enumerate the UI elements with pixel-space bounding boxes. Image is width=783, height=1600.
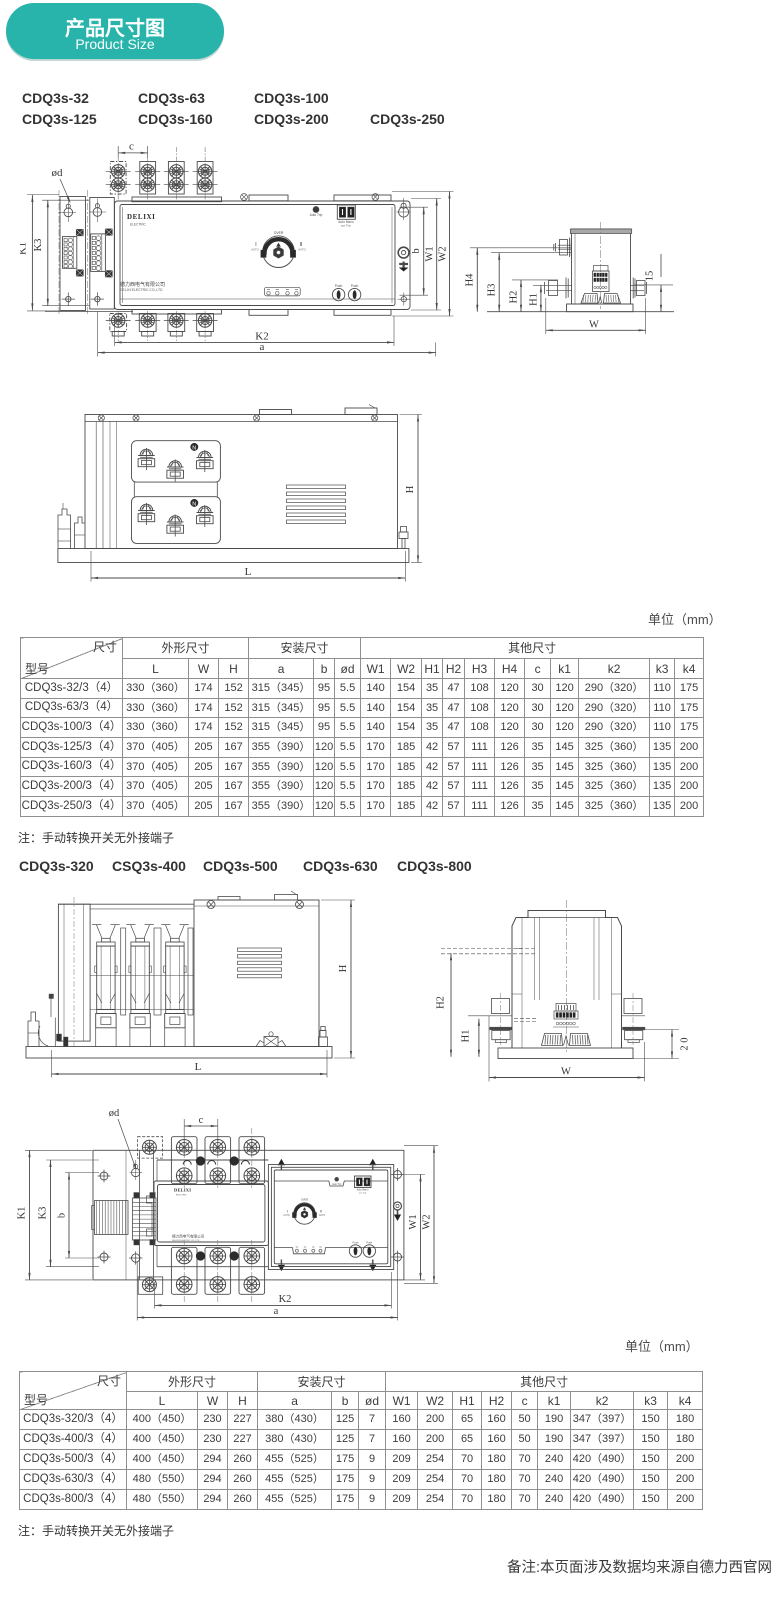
svg-text:c: c [199, 1115, 204, 1126]
svg-text:H: H [405, 485, 416, 493]
svg-text:OVER: OVER [301, 1197, 308, 1201]
svg-text:Push: Push [353, 1241, 359, 1245]
svg-text:aut Trip: aut Trip [341, 224, 351, 228]
svg-text:a: a [260, 341, 265, 353]
svg-text:OVER: OVER [274, 231, 284, 235]
svg-text:W1: W1 [425, 246, 436, 261]
svg-text:Auto Manu: Auto Manu [357, 1189, 369, 1192]
svg-text:b: b [57, 1213, 68, 1218]
svg-text:L: L [245, 566, 252, 578]
svg-text:c: c [129, 140, 134, 152]
svg-text:K3: K3 [38, 1207, 49, 1220]
svg-text:DELIXI: DELIXI [127, 213, 156, 221]
svg-text:b: b [411, 248, 422, 253]
svg-text:Push: Push [335, 284, 343, 288]
svg-text:ELECTRIC: ELECTRIC [176, 1195, 187, 1197]
svg-text:II: II [300, 242, 303, 248]
svg-text:H2: H2 [509, 291, 520, 304]
svg-text:I: I [287, 1210, 288, 1214]
svg-text:DELIXI ELECTRIC CO.,LTD: DELIXI ELECTRIC CO.,LTD [172, 1240, 200, 1242]
svg-text:H1: H1 [529, 293, 540, 306]
svg-text:ød: ød [52, 167, 64, 179]
svg-text:N: N [192, 501, 196, 507]
svg-text:ELECTRIC: ELECTRIC [130, 223, 146, 227]
svg-text:DELIXI: DELIXI [174, 1188, 191, 1193]
svg-text:K1: K1 [20, 242, 29, 255]
svg-text:DELIXI ELECTRIC CO.,LTD: DELIXI ELECTRIC CO.,LTD [120, 288, 163, 292]
svg-text:AUTO: AUTO [251, 248, 258, 252]
svg-text:ød: ød [109, 1108, 120, 1119]
svg-text:AUTO: AUTO [298, 248, 305, 252]
svg-text:H3: H3 [487, 284, 498, 297]
svg-text:H: H [338, 964, 349, 972]
svg-text:2 0: 2 0 [680, 1037, 691, 1050]
svg-text:德力西电气有限公司: 德力西电气有限公司 [120, 281, 165, 288]
svg-text:a: a [274, 1306, 279, 1317]
svg-text:I: I [255, 242, 256, 248]
svg-text:Auto Trip: Auto Trip [310, 213, 323, 217]
svg-text:H4: H4 [465, 273, 476, 287]
svg-text:H2: H2 [436, 996, 447, 1009]
svg-text:W2: W2 [438, 246, 449, 261]
svg-text:Push: Push [351, 284, 359, 288]
svg-text:W2: W2 [422, 1214, 433, 1229]
svg-text:W: W [589, 320, 599, 331]
svg-text:K2: K2 [279, 1294, 292, 1305]
svg-text:AUTO: AUTO [283, 1214, 290, 1217]
svg-text:Auto Trip: Auto Trip [332, 1183, 342, 1186]
svg-text:K3: K3 [33, 239, 44, 252]
svg-text:AUTO: AUTO [319, 1214, 326, 1217]
svg-text:Push: Push [366, 1241, 372, 1245]
svg-text:aut Trip: aut Trip [359, 1192, 367, 1195]
svg-text:II: II [320, 1210, 322, 1214]
svg-text:L: L [195, 1061, 202, 1073]
svg-text:K1: K1 [17, 1207, 28, 1220]
svg-text:W: W [561, 1067, 571, 1078]
svg-text:H1: H1 [461, 1030, 472, 1043]
svg-text:W1: W1 [408, 1214, 419, 1229]
svg-text:N: N [192, 445, 196, 451]
svg-text:德力西电气有限公司: 德力西电气有限公司 [172, 1234, 205, 1239]
svg-text:15: 15 [645, 271, 656, 282]
